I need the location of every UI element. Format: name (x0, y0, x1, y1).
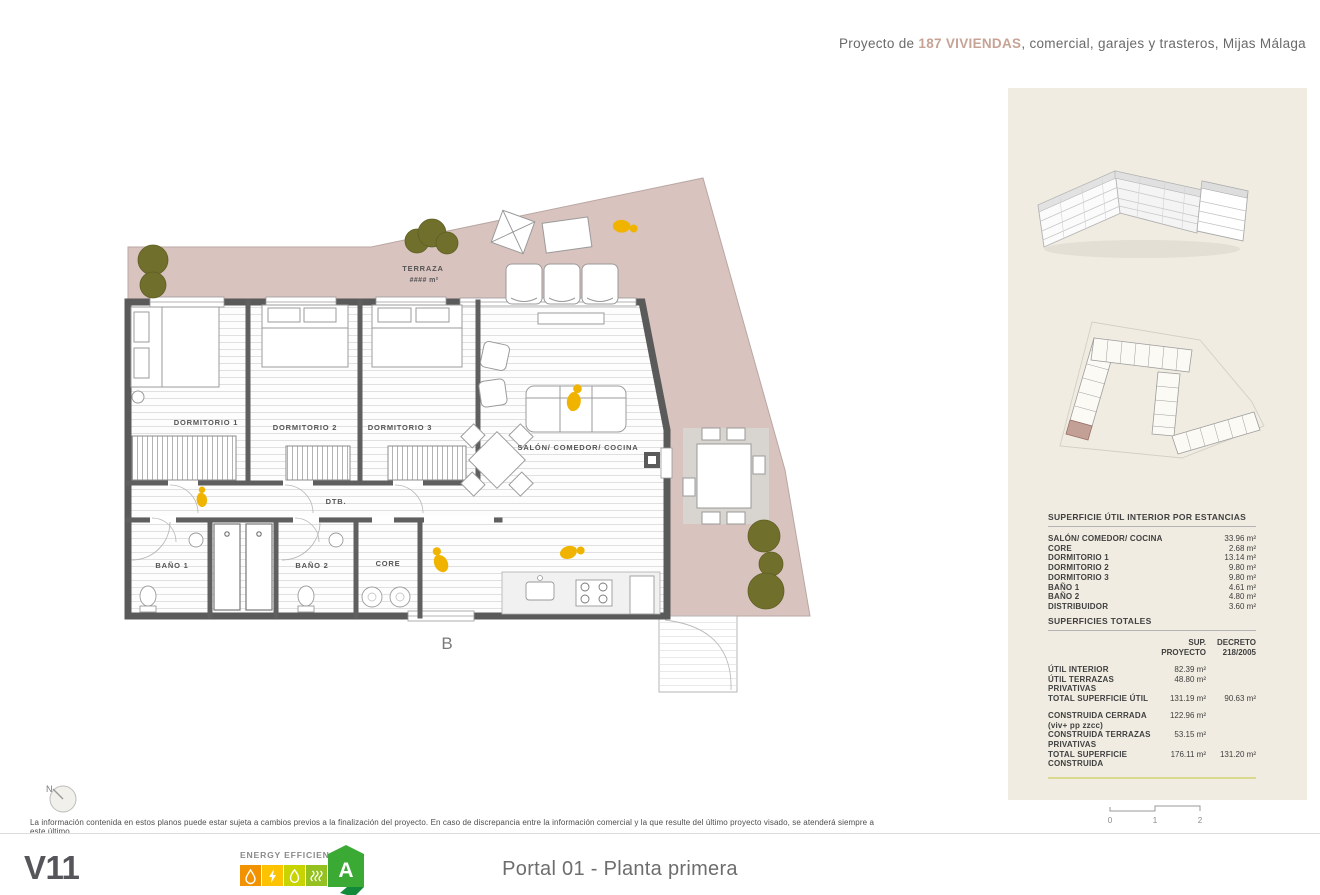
table-row: TOTAL SUPERFICIE CONSTRUIDA176.11 m²131.… (1048, 750, 1256, 779)
terrace-area-value: #### m² (410, 277, 439, 284)
room-label-dormitorio3: DORMITORIO 3 (368, 423, 432, 432)
table-row: BAÑO 14.61 m² (1048, 583, 1256, 593)
compass: N (40, 778, 88, 822)
room-label-dtb: DTB. (326, 497, 347, 506)
section-marker-b: B (441, 634, 452, 653)
room-label-salon: SALÓN/ COMEDOR/ COCINA (518, 443, 639, 452)
sheet-title: Portal 01 - Planta primera (495, 858, 745, 881)
terrace-label: TERRAZA (402, 264, 443, 273)
table-row: DORMITORIO 113.14 m² (1048, 553, 1256, 563)
room-label-dormitorio1: DORMITORIO 1 (174, 418, 238, 427)
table-row: TOTAL SUPERFICIE ÚTIL131.19 m²90.63 m² (1048, 694, 1256, 704)
plan-sheet: Proyecto de 187 VIVIENDAS, comercial, ga… (0, 0, 1320, 895)
energy-rating-badge: A (328, 845, 364, 895)
surface-table-title: SUPERFICIE ÚTIL INTERIOR POR ESTANCIAS (1048, 512, 1256, 527)
totals-table-title: SUPERFICIES TOTALES (1048, 616, 1256, 631)
svg-text:2: 2 (1198, 816, 1203, 825)
floor-plan: DORMITORIO 1 DORMITORIO 2 DORMITORIO 3 S… (110, 160, 880, 735)
surface-table: SUPERFICIE ÚTIL INTERIOR POR ESTANCIAS S… (1048, 512, 1256, 612)
scale-bar: 0 1 2 (1095, 800, 1220, 828)
table-row: CONSTRUIDA CERRADA (viv+ pp zzcc)122.96 … (1048, 711, 1256, 730)
totals-table: SUPERFICIES TOTALES SUP.PROYECTO DECRETO… (1048, 616, 1256, 779)
energy-efficiency-label: ENERGY EFFICIENCY A (240, 845, 374, 895)
table-row: BAÑO 24.80 m² (1048, 592, 1256, 602)
render-shadow (1044, 240, 1240, 258)
entry-stair (659, 616, 737, 692)
table-row: DORMITORIO 39.80 m² (1048, 573, 1256, 583)
project-header-highlight: 187 VIVIENDAS (918, 36, 1021, 51)
project-header-prefix: Proyecto de (839, 36, 918, 51)
svg-text:1: 1 (1153, 816, 1158, 825)
developer-logo: V11 (24, 849, 79, 887)
kitchen (502, 572, 660, 614)
footer-divider (0, 833, 1320, 834)
table-row: ÚTIL TERRAZAS PRIVATIVAS48.80 m² (1048, 675, 1256, 694)
table-row: DORMITORIO 29.80 m² (1048, 563, 1256, 573)
side-panel: SUPERFICIE ÚTIL INTERIOR POR ESTANCIAS S… (1008, 88, 1307, 800)
room-label-bano2: BAÑO 2 (295, 561, 328, 570)
site-plan (1040, 316, 1266, 464)
totals-table-header: SUP.PROYECTO DECRETO218/2005 (1048, 638, 1256, 657)
room-label-dormitorio2: DORMITORIO 2 (273, 423, 337, 432)
room-label-core: CORE (376, 559, 401, 568)
table-row: CONSTRUIDA TERRAZAS PRIVATIVAS53.15 m² (1048, 730, 1256, 749)
energy-label-text: ENERGY EFFICIENCY (240, 850, 343, 860)
table-row: DISTRIBUIDOR3.60 m² (1048, 602, 1256, 612)
project-header-suffix: , comercial, garajes y trasteros, Mijas … (1021, 36, 1306, 51)
project-header: Proyecto de 187 VIVIENDAS, comercial, ga… (839, 36, 1306, 51)
table-row: ÚTIL INTERIOR82.39 m² (1048, 665, 1256, 675)
outdoor-dining-table (697, 444, 751, 508)
energy-icon-squares (240, 865, 327, 886)
table-row: SALÓN/ COMEDOR/ COCINA33.96 m² (1048, 534, 1256, 544)
svg-text:0: 0 (1108, 816, 1113, 825)
room-label-bano1: BAÑO 1 (155, 561, 188, 570)
table-row: CORE2.68 m² (1048, 544, 1256, 554)
building-render-3d (1020, 143, 1270, 268)
svg-text:A: A (338, 859, 353, 882)
